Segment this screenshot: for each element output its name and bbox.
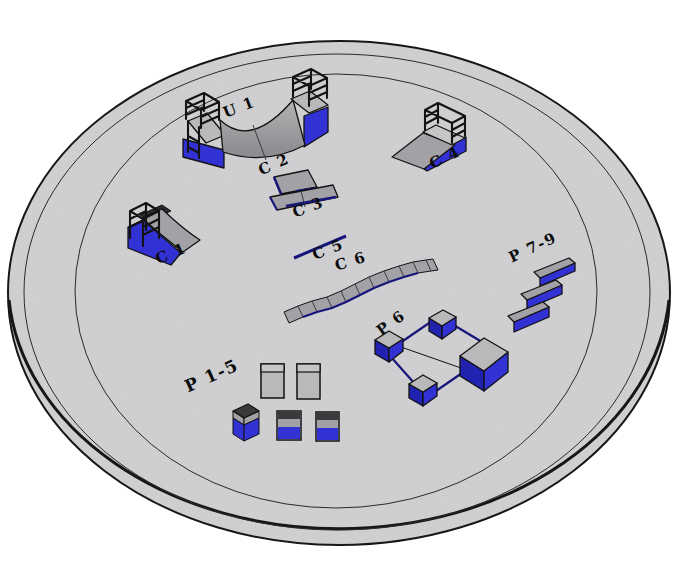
p5-cube	[316, 412, 339, 441]
viewport: U 1 C 1 C 2 C 3 C 4 C 5 C 6 P 1-5 P 6 P …	[0, 0, 680, 579]
p1-tall-box	[261, 364, 284, 398]
scene-canvas[interactable]: U 1 C 1 C 2 C 3 C 4 C 5 C 6 P 1-5 P 6 P …	[0, 0, 680, 579]
p4-cube	[277, 411, 301, 440]
p2-tall-box	[297, 364, 320, 399]
p3-cube	[233, 404, 259, 441]
